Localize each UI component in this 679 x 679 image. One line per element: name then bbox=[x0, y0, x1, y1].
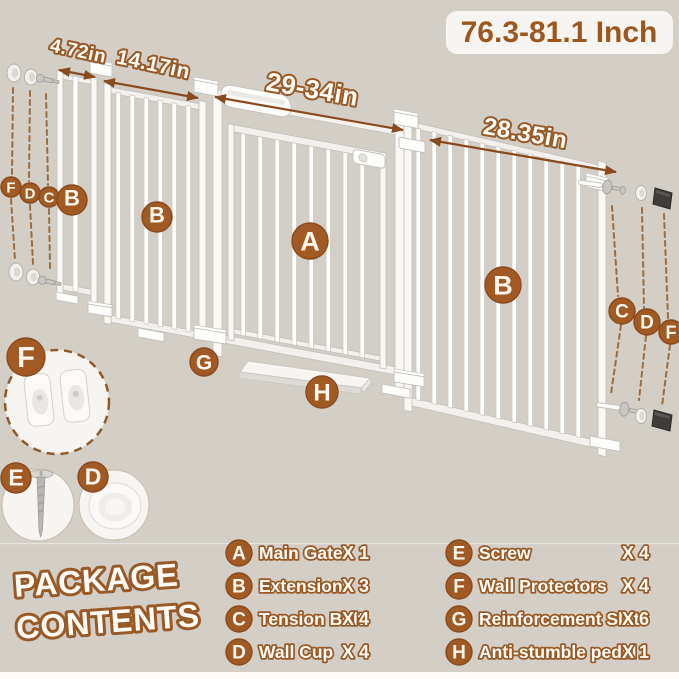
badge-main-gate: A bbox=[292, 223, 328, 259]
foot-plate bbox=[590, 436, 620, 452]
wall-cup-icon bbox=[25, 69, 38, 85]
item-qty: X 4 bbox=[342, 609, 369, 629]
badge-wall-protectors: F bbox=[659, 320, 679, 344]
wall-protector-icon bbox=[7, 64, 21, 82]
wall-cup-icon bbox=[636, 186, 647, 201]
badge-wall-cup: D bbox=[20, 183, 40, 203]
svg-text:CONTENTS: CONTENTS bbox=[15, 597, 201, 646]
item-label: Main Gate bbox=[259, 543, 343, 563]
package-item-row: A Main Gate X 1 bbox=[226, 540, 369, 566]
svg-text:B: B bbox=[493, 270, 513, 300]
item-label: Wall Cup bbox=[259, 642, 333, 662]
bottom-strip bbox=[0, 672, 679, 679]
badge-extension: B bbox=[142, 202, 172, 232]
badge-reinforcement-slot: G bbox=[190, 348, 218, 376]
svg-text:D: D bbox=[25, 185, 36, 202]
badge-anti-stumble-pedal: H bbox=[306, 376, 338, 408]
badge-wall-cup: D bbox=[634, 309, 660, 335]
item-label: Extension bbox=[259, 576, 343, 596]
wall-cup-icon bbox=[27, 269, 40, 285]
package-item-row: G Reinforcement Slot X 6 bbox=[446, 606, 649, 632]
item-qty: X 1 bbox=[342, 543, 369, 563]
svg-text:D: D bbox=[85, 464, 102, 490]
svg-text:F: F bbox=[6, 179, 15, 196]
wall-protector-dark-icon bbox=[653, 188, 672, 209]
badge-wall-protectors: F bbox=[7, 338, 45, 376]
item-label: Reinforcement Slot bbox=[479, 609, 640, 629]
package-title: PACKAGE CONTENTS bbox=[12, 555, 201, 646]
svg-text:A: A bbox=[300, 226, 320, 256]
wall-protector-icon bbox=[9, 263, 23, 281]
item-badge-letter: C bbox=[232, 610, 246, 631]
package-item-row: D Wall Cup X 4 bbox=[226, 639, 369, 665]
svg-text:F: F bbox=[666, 322, 677, 342]
item-badge-letter: D bbox=[232, 643, 246, 664]
item-label: Screw bbox=[479, 543, 531, 563]
item-badge-letter: F bbox=[453, 577, 465, 598]
item-qty: X 1 bbox=[622, 642, 649, 662]
svg-text:C: C bbox=[615, 302, 629, 323]
svg-text:F: F bbox=[17, 342, 35, 374]
svg-text:H: H bbox=[313, 379, 330, 406]
tension-bolt-icon bbox=[35, 74, 59, 87]
product-infographic: 4.72in 14.17in 29-34in 28.35in 76.3-81.1… bbox=[0, 0, 679, 679]
gate-diagram: 4.72in 14.17in 29-34in 28.35in 76.3-81.1… bbox=[0, 0, 679, 679]
item-qty: X 4 bbox=[622, 543, 649, 563]
item-qty: X 4 bbox=[342, 642, 369, 662]
item-label: Anti-stumble pedal bbox=[479, 642, 637, 662]
svg-text:E: E bbox=[8, 465, 23, 491]
svg-text:C: C bbox=[44, 189, 55, 206]
size-range-box: 76.3-81.1 Inch bbox=[446, 11, 673, 54]
svg-text:D: D bbox=[640, 313, 654, 334]
item-badge-letter: B bbox=[232, 577, 246, 598]
badge-tension-bolt: C bbox=[609, 298, 635, 324]
package-item-row: F Wall Protectors X 4 bbox=[446, 573, 649, 599]
badge-screw: E bbox=[1, 463, 31, 493]
svg-text:PACKAGE: PACKAGE bbox=[13, 557, 180, 604]
badge-extension: B bbox=[485, 267, 521, 303]
badge-tension-bolt: C bbox=[39, 187, 59, 207]
wall-protector-hook bbox=[23, 373, 54, 427]
pressure-pad bbox=[194, 77, 218, 96]
item-badge-letter: H bbox=[452, 643, 466, 664]
wall-protector-hook bbox=[59, 369, 90, 423]
dimension-label-medium-extension: 14.17in bbox=[114, 46, 192, 84]
item-label: Wall Protectors bbox=[479, 576, 607, 596]
package-item-row: B Extension X 3 bbox=[226, 573, 369, 599]
size-range-label: 76.3-81.1 Inch bbox=[461, 16, 658, 49]
item-badge-letter: G bbox=[452, 610, 467, 631]
item-qty: X 6 bbox=[622, 609, 649, 629]
item-badge-letter: E bbox=[453, 544, 466, 565]
dimension-label-small-extension: 4.72in bbox=[48, 35, 108, 67]
svg-text:B: B bbox=[149, 203, 165, 228]
package-item-row: H Anti-stumble pedal X 1 bbox=[446, 639, 649, 665]
item-qty: X 4 bbox=[622, 576, 649, 596]
package-item-row: C Tension Bolt X 4 bbox=[226, 606, 369, 632]
foot-plate bbox=[56, 292, 78, 304]
wall-protector-dark-icon bbox=[652, 410, 672, 431]
item-badge-letter: A bbox=[232, 544, 246, 565]
badge-wall-protectors: F bbox=[1, 177, 21, 197]
wall-cup-icon bbox=[636, 409, 647, 424]
badge-extension: B bbox=[57, 185, 87, 215]
item-qty: X 3 bbox=[342, 576, 369, 596]
badge-wall-cup: D bbox=[78, 462, 108, 492]
svg-text:B: B bbox=[64, 186, 80, 211]
svg-text:G: G bbox=[196, 351, 212, 374]
